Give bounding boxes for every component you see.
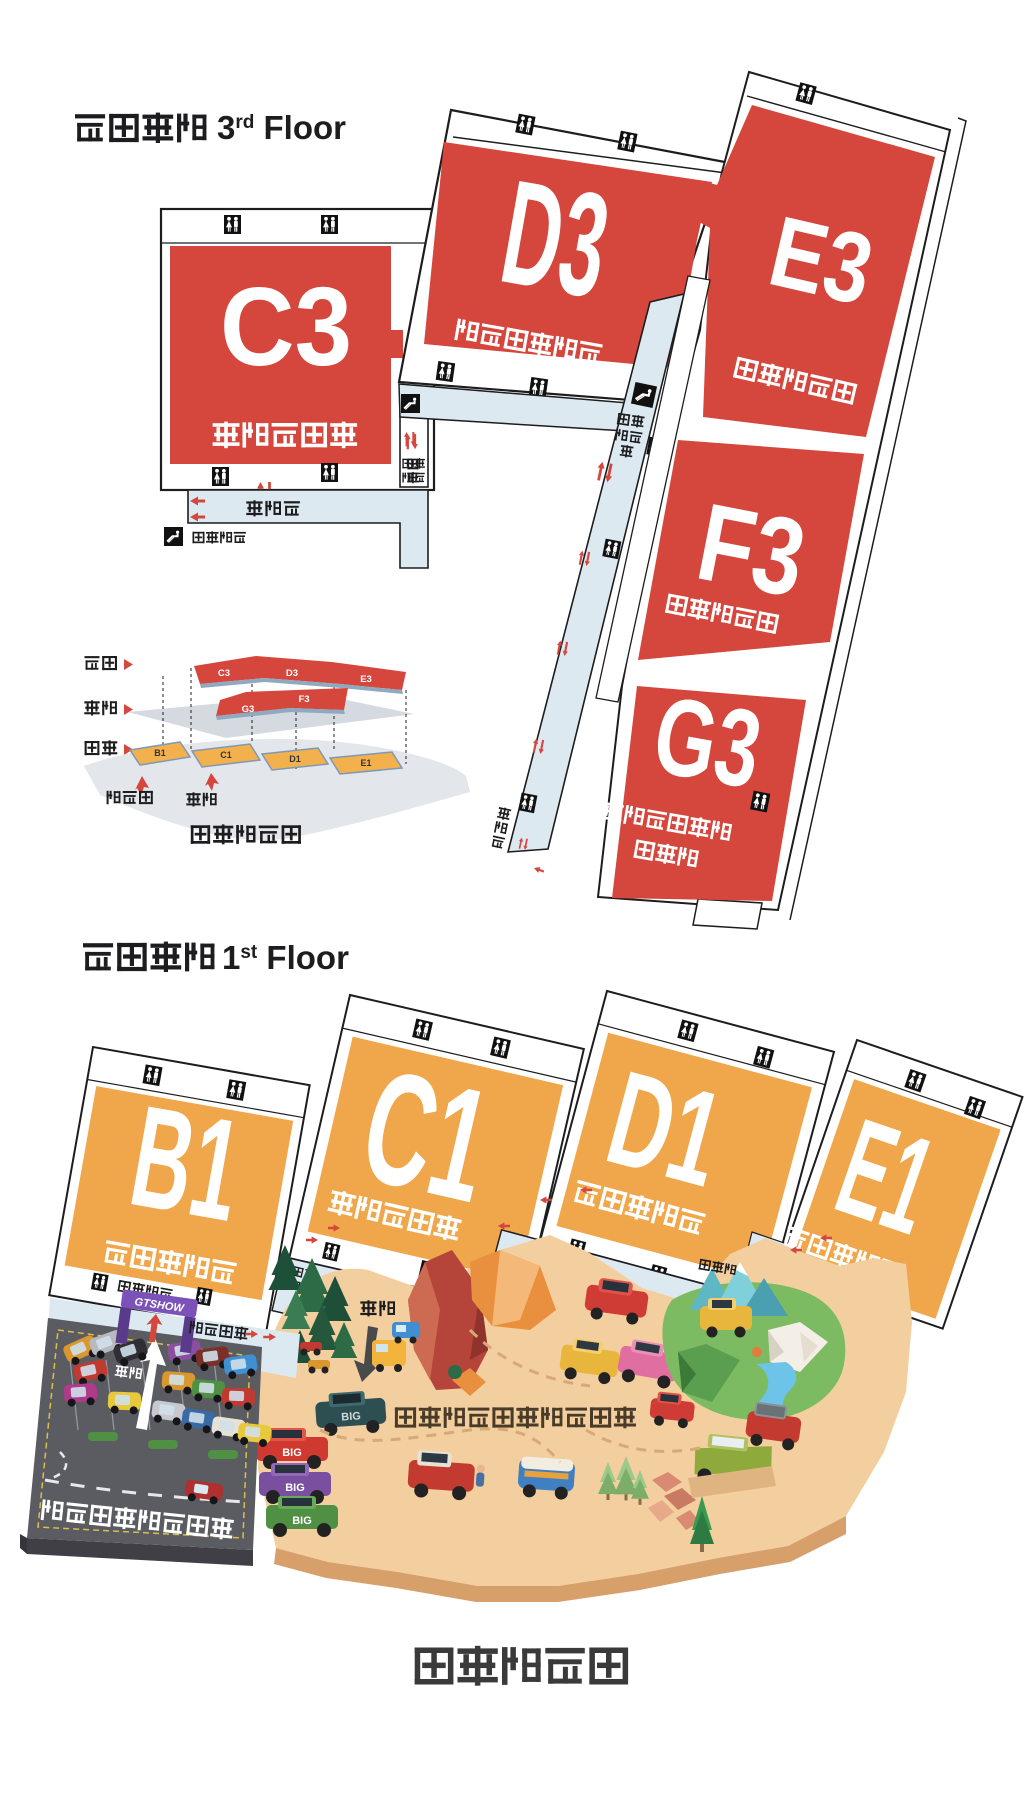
svg-text:BIG: BIG — [282, 1447, 302, 1459]
svg-text:BIG: BIG — [341, 1410, 361, 1423]
svg-text:F3: F3 — [298, 694, 309, 705]
svg-text:C3: C3 — [218, 668, 230, 679]
svg-text:BIG: BIG — [292, 1515, 312, 1527]
svg-text:C1: C1 — [220, 750, 232, 760]
svg-text:G3: G3 — [645, 673, 770, 812]
svg-text:E1: E1 — [360, 758, 371, 768]
svg-text:BIG: BIG — [285, 1482, 305, 1494]
svg-text:C3: C3 — [220, 265, 352, 389]
svg-text:D3: D3 — [286, 668, 298, 679]
svg-text:E3: E3 — [360, 674, 372, 685]
svg-text:D1: D1 — [289, 754, 301, 764]
svg-text:G3: G3 — [242, 704, 255, 715]
svg-text:B1: B1 — [154, 748, 166, 758]
